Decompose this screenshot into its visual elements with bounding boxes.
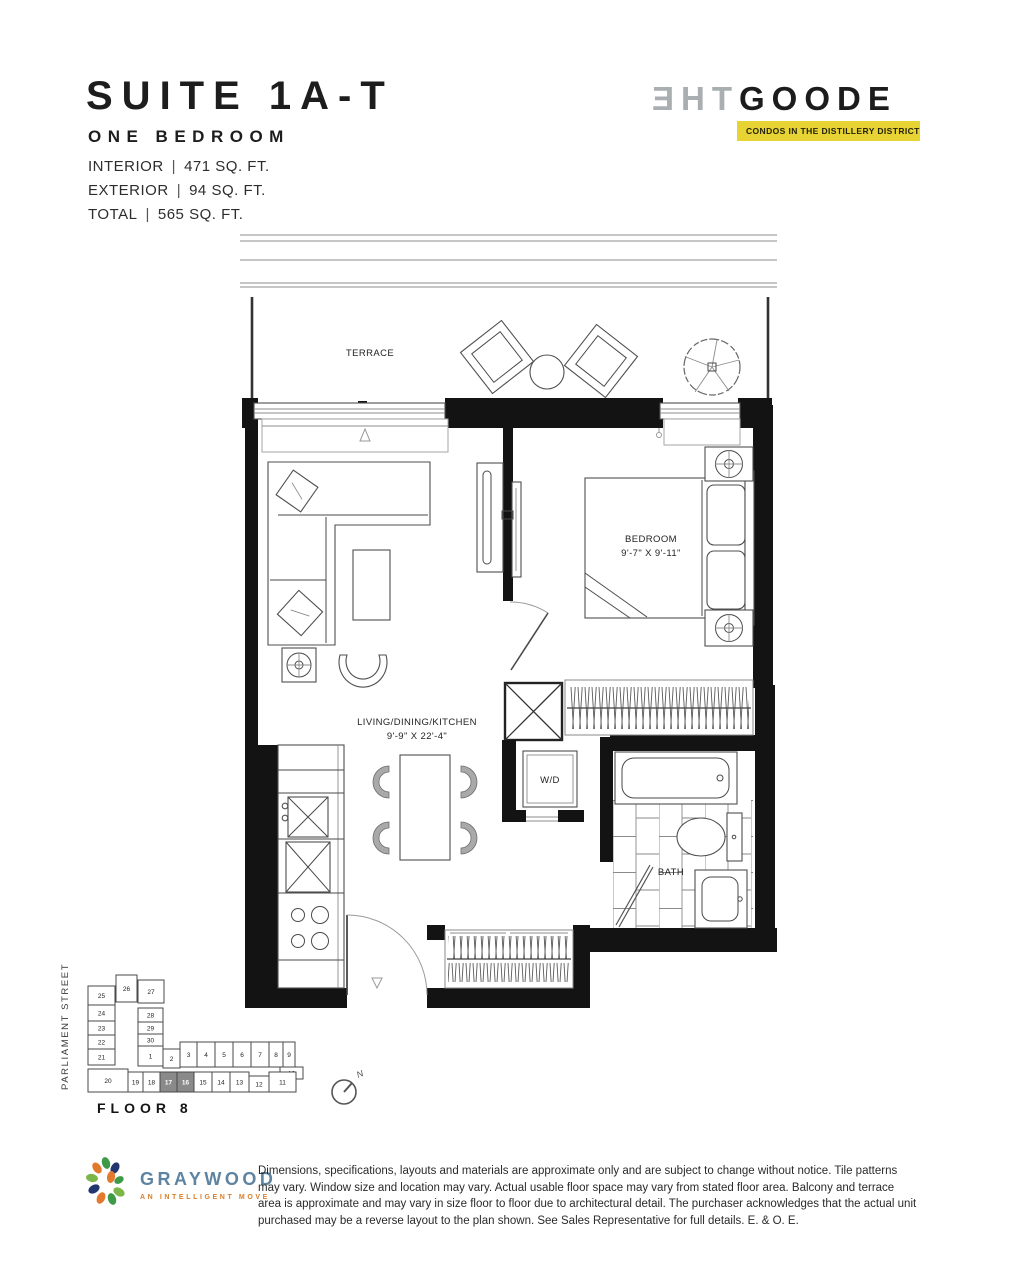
keyplan-unit-label: 15: [199, 1079, 207, 1086]
key-plan: 2524232221262728293012345678910201918171…: [86, 968, 336, 1108]
shaft-box: [505, 683, 562, 740]
floorplan-page: SUITE 1A-T ONE BEDROOM INTERIOR|471 SQ. …: [0, 0, 1022, 1280]
compass-north-label: N: [355, 1068, 365, 1080]
keyplan-unit-label: 18: [148, 1079, 156, 1086]
dining-chair: [461, 822, 477, 854]
keyplan-unit-label: 2: [170, 1056, 174, 1063]
bedroom-window: [657, 403, 741, 445]
keyplan-unit-label: 3: [187, 1052, 191, 1059]
nightstand: [705, 610, 753, 646]
headboard: [745, 471, 754, 625]
bed-pillow: [707, 551, 745, 609]
side-table-lamp: [282, 648, 316, 682]
keyplan-unit-label: 25: [98, 993, 106, 1000]
keyplan-unit-label: 4: [204, 1052, 208, 1059]
wd-label: W/D: [540, 775, 560, 786]
keyplan-unit-label: 5: [222, 1052, 226, 1059]
kitchen-counter: [278, 745, 344, 988]
graywood-tagline: AN INTELLIGENT MOVE: [140, 1194, 276, 1201]
spec-exterior: EXTERIOR|94 SQ. FT.: [88, 182, 270, 199]
keyplan-units: 2524232221262728293012345678910201918171…: [88, 975, 303, 1092]
keyplan-unit-label: 27: [147, 989, 155, 996]
spec-value: 471 SQ. FT.: [184, 158, 270, 175]
entry-marker: [372, 978, 382, 988]
keyplan-unit-label: 26: [123, 986, 131, 993]
bed-pillow: [707, 485, 745, 545]
logo-banner: CONDOS IN THE DISTILLERY DISTRICT: [737, 121, 920, 141]
disclaimer-text: Dimensions, specifications, layouts and …: [258, 1163, 920, 1230]
spec-separator: |: [177, 182, 181, 199]
keyplan-unit-label: 12: [255, 1081, 263, 1088]
nightstand: [705, 447, 753, 481]
logo-name: GOODE: [739, 80, 897, 117]
graywood-logo-icon: [86, 1156, 128, 1208]
spec-separator: |: [172, 158, 176, 175]
lounge-chair: [339, 655, 387, 687]
terrace: TERRACE: [240, 235, 777, 403]
keyplan-unit-label: 7: [258, 1052, 262, 1059]
street-label: PARLIAMENT STREET: [60, 963, 71, 1090]
bathtub: [615, 752, 737, 804]
living-dims: 9'-9" X 22'-4": [387, 731, 447, 742]
sliding-door: [477, 463, 521, 577]
logo-the-reversed: ƎHT: [652, 80, 739, 117]
keyplan-unit-label: 20: [104, 1078, 112, 1085]
spec-label: EXTERIOR: [88, 182, 169, 199]
bedroom-label: BEDROOM: [625, 534, 677, 545]
keyplan-unit-label: 19: [132, 1079, 140, 1086]
terrace-table-icon: [530, 355, 564, 389]
suite-subtitle: ONE BEDROOM: [88, 127, 290, 147]
keyplan-unit-label: 13: [236, 1079, 244, 1086]
bath-label: BATH: [658, 867, 684, 878]
keyplan-unit-label: 28: [147, 1012, 155, 1019]
graywood-name: GRAYWOOD: [140, 1169, 276, 1190]
balcony-door-window: [254, 403, 448, 452]
compass-icon: N: [326, 1064, 378, 1112]
terrace-chair-icon: [461, 321, 534, 394]
keyplan-unit-label: 22: [98, 1039, 106, 1046]
coffee-table: [353, 550, 390, 620]
goode-logo: ƎHTGOODE: [652, 80, 897, 118]
keyplan-unit-label: 8: [274, 1052, 278, 1059]
tree-icon: [684, 339, 740, 395]
living-label: LIVING/DINING/KITCHEN: [357, 717, 477, 728]
bedroom-dims: 9'-7" X 9'-11": [621, 548, 681, 559]
keyplan-unit-label: 11: [279, 1079, 286, 1086]
entry-door: [347, 915, 427, 995]
dining-set: [373, 755, 477, 860]
dining-chair: [461, 766, 477, 798]
keyplan-unit-label: 23: [98, 1025, 106, 1032]
floor-label: FLOOR 8: [97, 1100, 193, 1116]
keyplan-unit-label: 29: [147, 1025, 155, 1032]
bathroom: BATH: [613, 752, 753, 928]
spec-label: INTERIOR: [88, 158, 164, 175]
spec-separator: |: [145, 206, 149, 223]
keyplan-unit-label: 14: [217, 1079, 225, 1086]
keyplan-unit-label: 9: [287, 1052, 291, 1059]
dining-table: [400, 755, 450, 860]
keyplan-unit-label: 6: [240, 1052, 244, 1059]
keyplan-unit-label: 16: [182, 1079, 190, 1086]
suite-title: SUITE 1A-T: [86, 74, 394, 119]
sofa: [268, 462, 430, 645]
washer-dryer: W/D: [502, 740, 584, 822]
bedroom-door: [510, 602, 548, 670]
keyplan-unit-label: 17: [165, 1079, 173, 1086]
spec-total: TOTAL|565 SQ. FT.: [88, 206, 270, 223]
entry-closet: [445, 930, 573, 988]
terrace-label: TERRACE: [346, 348, 394, 359]
keyplan-unit-label: 21: [98, 1054, 106, 1061]
dining-chair: [373, 766, 389, 798]
keyplan-unit-label: 30: [147, 1037, 155, 1044]
bedroom-closet: [565, 680, 753, 735]
dining-chair: [373, 822, 389, 854]
keyplan-unit-label: 1: [149, 1053, 153, 1060]
spec-interior: INTERIOR|471 SQ. FT.: [88, 158, 270, 175]
spec-value: 565 SQ. FT.: [158, 206, 244, 223]
spec-value: 94 SQ. FT.: [189, 182, 266, 199]
graywood-brand: GRAYWOOD AN INTELLIGENT MOVE: [86, 1156, 276, 1208]
kitchen-sink: [282, 797, 328, 837]
terrace-chair-icon: [565, 325, 638, 398]
vanity-sink: [695, 870, 747, 928]
spec-label: TOTAL: [88, 206, 137, 223]
keyplan-unit-label: 24: [98, 1010, 106, 1017]
dishwasher: [286, 842, 330, 892]
suite-specs: INTERIOR|471 SQ. FT. EXTERIOR|94 SQ. FT.…: [88, 158, 270, 230]
floor-plan: TERRACE: [240, 225, 780, 1015]
